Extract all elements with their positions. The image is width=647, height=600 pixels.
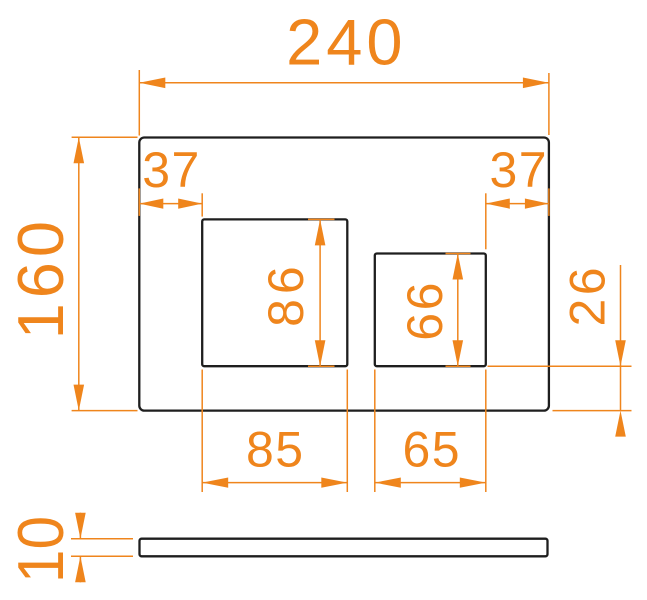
svg-text:85: 85 [246, 421, 305, 477]
svg-text:160: 160 [4, 216, 77, 339]
svg-text:10: 10 [5, 516, 77, 583]
svg-text:26: 26 [559, 264, 615, 327]
svg-text:65: 65 [402, 421, 461, 477]
svg-text:37: 37 [142, 142, 201, 198]
svg-text:37: 37 [489, 142, 548, 198]
svg-text:66: 66 [397, 280, 453, 341]
svg-text:86: 86 [258, 261, 314, 327]
svg-text:240: 240 [286, 5, 406, 78]
